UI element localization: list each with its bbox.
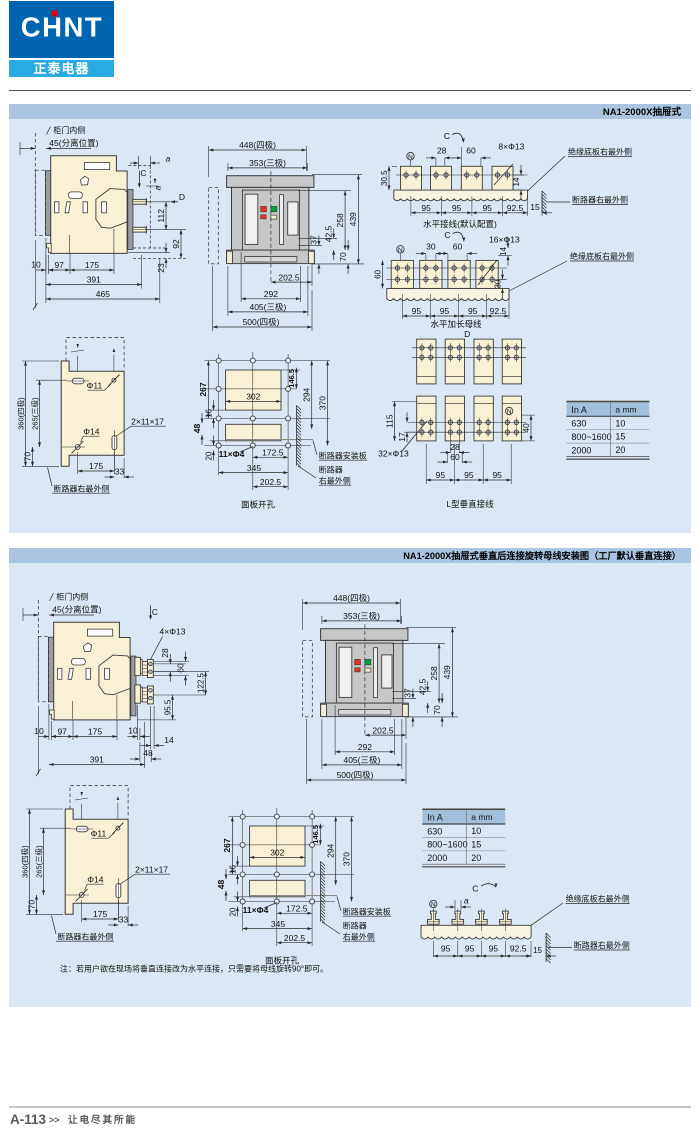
svg-text:In A: In A <box>571 405 587 415</box>
svg-text:15: 15 <box>471 839 481 849</box>
svg-text:C: C <box>444 131 450 141</box>
svg-text:2000: 2000 <box>427 853 447 863</box>
svg-text:2×11×17: 2×11×17 <box>131 417 164 427</box>
svg-text:353(三极): 353(三极) <box>343 611 380 621</box>
svg-text:92.5: 92.5 <box>507 203 524 213</box>
svg-text:122.5: 122.5 <box>196 672 205 693</box>
svg-text:294: 294 <box>302 387 312 401</box>
svg-text:630: 630 <box>571 419 586 429</box>
svg-text:a mm: a mm <box>615 404 636 414</box>
svg-text:16: 16 <box>228 865 237 874</box>
svg-text:C: C <box>444 230 450 240</box>
svg-text:16: 16 <box>204 409 213 418</box>
svg-text:水平加长母线: 水平加长母线 <box>430 319 482 329</box>
svg-text:97: 97 <box>57 727 67 737</box>
svg-text:10: 10 <box>128 726 138 736</box>
svg-text:112: 112 <box>156 209 166 223</box>
svg-text:42.5: 42.5 <box>418 678 428 695</box>
svg-text:14: 14 <box>512 177 521 186</box>
svg-text:Φ11: Φ11 <box>91 829 107 839</box>
svg-text:N: N <box>507 409 512 416</box>
svg-text:70: 70 <box>338 252 348 262</box>
svg-text:92.5: 92.5 <box>510 944 527 954</box>
svg-text:33: 33 <box>115 467 125 477</box>
svg-text:10: 10 <box>31 260 41 270</box>
svg-text:360(四极): 360(四极) <box>19 845 29 878</box>
svg-text:L型垂直接线: L型垂直接线 <box>446 499 494 509</box>
svg-text:15: 15 <box>615 432 625 442</box>
svg-text:断路器右最外侧: 断路器右最外侧 <box>572 195 628 205</box>
svg-text:11×Φ4: 11×Φ4 <box>243 905 269 915</box>
svg-text:370: 370 <box>317 396 327 410</box>
svg-text:23: 23 <box>156 263 166 273</box>
svg-text:391: 391 <box>87 275 101 285</box>
svg-text:20: 20 <box>471 853 481 863</box>
svg-text:146.5: 146.5 <box>311 825 320 844</box>
svg-text:绝缘底板右最外侧: 绝缘底板右最外侧 <box>568 147 632 157</box>
svg-text:37: 37 <box>309 235 319 245</box>
svg-text:353(三极): 353(三极) <box>249 158 286 168</box>
svg-text:8×Φ13: 8×Φ13 <box>498 142 524 152</box>
svg-text:33: 33 <box>119 915 129 925</box>
svg-text:345: 345 <box>271 919 285 929</box>
svg-text:292: 292 <box>264 289 278 299</box>
svg-text:202.5: 202.5 <box>278 272 300 282</box>
svg-text:258: 258 <box>335 213 345 227</box>
svg-text:C: C <box>152 607 158 617</box>
svg-text:439: 439 <box>348 212 358 226</box>
svg-text:175: 175 <box>93 909 107 919</box>
svg-text:断路器右最外侧: 断路器右最外侧 <box>57 932 113 942</box>
svg-text:95: 95 <box>482 203 492 213</box>
svg-text:让电尽其所能: 让电尽其所能 <box>68 1114 137 1126</box>
svg-text:175: 175 <box>88 727 102 737</box>
svg-text:302: 302 <box>246 392 260 402</box>
svg-text:202.5: 202.5 <box>260 477 282 487</box>
svg-text:294: 294 <box>326 843 336 857</box>
svg-text:28: 28 <box>160 648 170 658</box>
svg-text:95: 95 <box>492 470 502 480</box>
svg-text:370: 370 <box>341 852 351 866</box>
svg-text:391: 391 <box>90 755 104 765</box>
svg-text:48: 48 <box>192 424 202 434</box>
svg-text:A-113: A-113 <box>10 1112 47 1127</box>
svg-text:N: N <box>398 247 403 254</box>
svg-text:175: 175 <box>89 461 103 471</box>
svg-text:32×Φ13: 32×Φ13 <box>378 449 409 459</box>
svg-text:20: 20 <box>204 451 213 460</box>
svg-text:Φ11: Φ11 <box>87 381 103 391</box>
svg-text:95: 95 <box>412 306 422 316</box>
svg-text:95: 95 <box>421 203 431 213</box>
svg-text:a: a <box>166 154 171 164</box>
svg-text:95: 95 <box>465 944 475 954</box>
svg-text:C: C <box>140 168 146 178</box>
svg-text:Φ14: Φ14 <box>83 427 100 437</box>
svg-text:202.5: 202.5 <box>284 933 306 943</box>
svg-text:630: 630 <box>427 826 442 836</box>
svg-text:30.5: 30.5 <box>380 170 389 186</box>
svg-text:95: 95 <box>468 306 478 316</box>
svg-text:断路器右最外侧: 断路器右最外侧 <box>574 940 630 950</box>
svg-text:断路器: 断路器 <box>319 465 343 475</box>
svg-text:断路器安装板: 断路器安装板 <box>319 451 367 461</box>
svg-text:40: 40 <box>521 423 531 433</box>
svg-text:360(四极): 360(四极) <box>15 397 25 430</box>
svg-text:172.5: 172.5 <box>262 448 284 458</box>
svg-text:345: 345 <box>247 463 261 473</box>
svg-text:28: 28 <box>450 442 460 452</box>
svg-text:258: 258 <box>429 666 439 680</box>
svg-text:265(三级): 265(三级) <box>33 845 43 878</box>
svg-text:265(三级): 265(三级) <box>29 397 39 430</box>
svg-text:60: 60 <box>175 663 185 673</box>
svg-text:断路器安装板: 断路器安装板 <box>343 907 391 917</box>
svg-text:60: 60 <box>373 269 382 278</box>
svg-text:NA1-2000X抽屉式垂直后连接旋转母线安装图（工厂默认垂: NA1-2000X抽屉式垂直后连接旋转母线安装图（工厂默认垂直连接） <box>403 550 681 561</box>
svg-text:注：若用户欲在现场将垂直连接改为水平连接，只需要将母线旋转9: 注：若用户欲在现场将垂直连接改为水平连接，只需要将母线旋转90°即可。 <box>60 964 328 974</box>
svg-text:800~1600: 800~1600 <box>427 840 467 850</box>
svg-text:115: 115 <box>384 414 394 428</box>
svg-text:NA1-2000X抽屉式: NA1-2000X抽屉式 <box>603 106 682 118</box>
svg-text:95.5: 95.5 <box>163 699 172 715</box>
svg-text:16×Φ13: 16×Φ13 <box>489 235 520 245</box>
svg-text:448(四极): 448(四极) <box>239 140 276 150</box>
svg-text:14: 14 <box>164 735 174 745</box>
svg-text:C: C <box>472 884 478 894</box>
svg-text:292: 292 <box>358 742 372 752</box>
svg-text:172.5: 172.5 <box>286 904 308 914</box>
svg-text:70: 70 <box>22 452 32 462</box>
svg-text:柜门内侧: 柜门内侧 <box>53 125 85 135</box>
svg-text:465: 465 <box>96 289 110 299</box>
svg-text:95: 95 <box>489 944 499 954</box>
svg-text:30: 30 <box>493 279 502 288</box>
svg-text:202.5: 202.5 <box>372 725 394 735</box>
svg-text:绝缘底板右最外侧: 绝缘底板右最外侧 <box>566 894 630 904</box>
svg-text:正泰电器: 正泰电器 <box>33 61 89 76</box>
svg-text:28: 28 <box>437 146 447 156</box>
svg-text:10: 10 <box>471 826 481 836</box>
svg-text:20: 20 <box>615 445 625 455</box>
svg-text:267: 267 <box>222 838 232 852</box>
svg-text:267: 267 <box>198 382 208 396</box>
svg-text:95: 95 <box>464 470 474 480</box>
svg-text:a: a <box>464 896 469 906</box>
svg-text:17: 17 <box>397 432 407 442</box>
svg-text:70: 70 <box>432 705 442 715</box>
svg-text:20: 20 <box>228 907 237 916</box>
svg-text:a mm: a mm <box>471 812 492 822</box>
svg-text:45(分离位置): 45(分离位置) <box>49 138 98 148</box>
svg-text:水平接线(默认配置): 水平接线(默认配置) <box>423 219 497 229</box>
svg-text:10: 10 <box>615 418 625 428</box>
svg-text:405(三极): 405(三极) <box>343 755 380 765</box>
svg-text:11×Φ4: 11×Φ4 <box>219 449 245 459</box>
svg-text:CHNT: CHNT <box>21 12 103 43</box>
svg-text:2×11×17: 2×11×17 <box>135 865 168 875</box>
svg-text:N: N <box>431 902 436 909</box>
svg-text:42.5: 42.5 <box>324 225 334 242</box>
svg-text:500(四极): 500(四极) <box>243 317 280 327</box>
svg-text:N: N <box>408 154 413 161</box>
svg-text:500(四极): 500(四极) <box>337 770 374 780</box>
svg-text:D: D <box>464 329 470 339</box>
svg-text:2000: 2000 <box>571 445 591 455</box>
svg-text:右最外侧: 右最外侧 <box>319 476 351 486</box>
svg-text:15: 15 <box>533 946 542 955</box>
svg-text:Φ14: Φ14 <box>87 875 104 885</box>
svg-text:>>: >> <box>49 1115 60 1125</box>
svg-text:面板开孔: 面板开孔 <box>241 500 276 510</box>
svg-text:30: 30 <box>426 241 436 251</box>
svg-text:4×Φ13: 4×Φ13 <box>160 627 186 637</box>
svg-text:绝缘底板右最外侧: 绝缘底板右最外侧 <box>570 251 634 261</box>
svg-text:439: 439 <box>442 665 452 679</box>
svg-text:D: D <box>179 192 185 202</box>
svg-text:45(分离位置): 45(分离位置) <box>52 605 101 615</box>
svg-text:37: 37 <box>403 688 413 698</box>
svg-text:60: 60 <box>450 452 460 462</box>
svg-text:302: 302 <box>270 848 284 858</box>
svg-text:175: 175 <box>85 260 99 270</box>
svg-text:柜门内侧: 柜门内侧 <box>56 592 88 602</box>
svg-text:右最外侧: 右最外侧 <box>343 932 375 942</box>
svg-text:800~1600: 800~1600 <box>571 432 611 442</box>
svg-text:70: 70 <box>26 900 36 910</box>
svg-text:146.5: 146.5 <box>287 369 296 388</box>
svg-text:48: 48 <box>216 880 226 890</box>
svg-text:405(三极): 405(三极) <box>249 302 286 312</box>
svg-text:断路器: 断路器 <box>343 921 367 931</box>
svg-text:10: 10 <box>34 726 44 736</box>
svg-text:95: 95 <box>452 203 462 213</box>
svg-text:15: 15 <box>530 202 540 212</box>
svg-text:95: 95 <box>441 944 451 954</box>
svg-text:95: 95 <box>436 470 446 480</box>
svg-text:92.5: 92.5 <box>490 306 507 316</box>
svg-text:92: 92 <box>171 239 181 249</box>
svg-text:448(四极): 448(四极) <box>333 593 370 603</box>
svg-text:In A: In A <box>427 813 443 823</box>
svg-text:断路器右最外侧: 断路器右最外侧 <box>53 484 109 494</box>
svg-text:14: 14 <box>499 247 508 256</box>
svg-text:60: 60 <box>466 146 476 156</box>
svg-text:95: 95 <box>440 306 450 316</box>
svg-text:60: 60 <box>453 241 463 251</box>
svg-text:97: 97 <box>54 260 64 270</box>
